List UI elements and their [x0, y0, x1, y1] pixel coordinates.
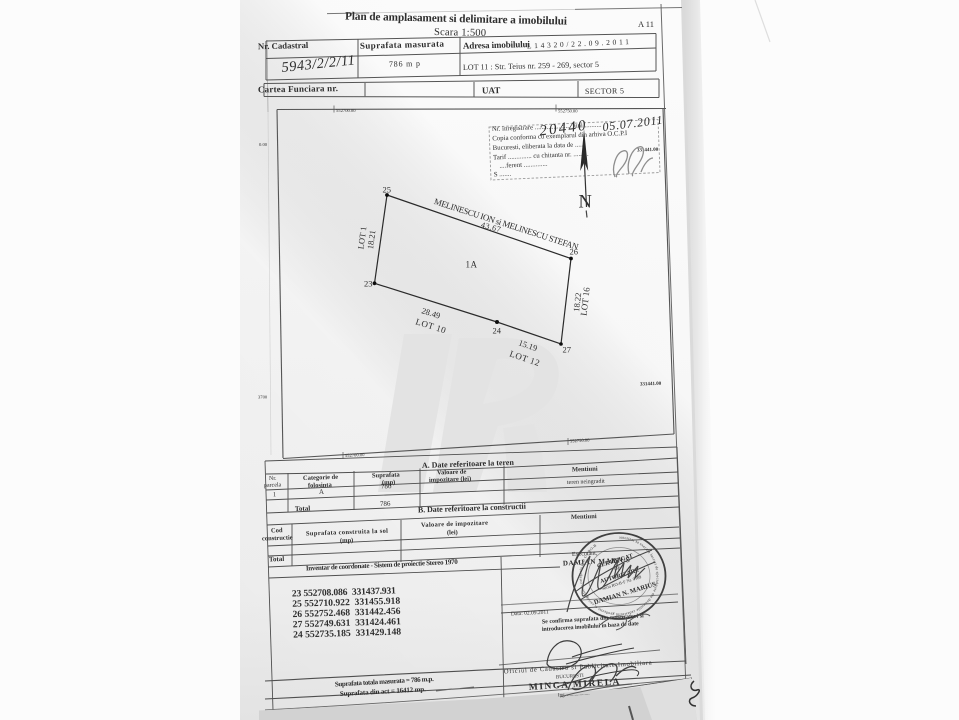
svg-text:3700: 3700 [258, 395, 268, 400]
svg-text:552700.00: 552700.00 [336, 108, 356, 113]
svg-text:S .......: S ....... [494, 171, 512, 179]
svg-text:Categorie de: Categorie de [303, 474, 339, 482]
svg-text:27: 27 [563, 345, 572, 355]
svg-text:24: 24 [493, 326, 502, 336]
svg-text:786 m p: 786 m p [389, 59, 420, 69]
svg-text:23: 23 [364, 279, 373, 289]
svg-text:552750.00: 552750.00 [558, 108, 578, 113]
svg-text:impozitare (lei): impozitare (lei) [429, 476, 472, 484]
svg-text:786: 786 [380, 500, 391, 508]
svg-text:constructie: constructie [262, 534, 293, 542]
svg-text:1: 1 [273, 491, 276, 498]
svg-text:UAT: UAT [482, 85, 501, 95]
svg-text:parcela: parcela [264, 482, 282, 489]
svg-text:786: 786 [381, 482, 392, 490]
svg-text:(lei): (lei) [447, 529, 458, 536]
svg-text:A: A [319, 488, 324, 496]
svg-text:Cod: Cod [271, 527, 283, 534]
svg-text:Adresa imobilului: Adresa imobilului [463, 39, 531, 51]
svg-text:Nr.: Nr. [269, 476, 277, 482]
svg-text:552700.00: 552700.00 [345, 452, 365, 458]
svg-text:0.00: 0.00 [259, 142, 268, 147]
svg-text:331441.00: 331441.00 [637, 148, 659, 154]
svg-text:331441.00: 331441.00 [640, 382, 662, 388]
svg-text:25: 25 [383, 185, 392, 195]
svg-text:Total: Total [295, 504, 311, 513]
svg-text:Nr. Cadastral: Nr. Cadastral [258, 40, 309, 51]
svg-text:A 11: A 11 [638, 19, 654, 29]
svg-text:(mp): (mp) [340, 537, 354, 544]
svg-text:Total: Total [269, 555, 285, 564]
svg-text:Cartea Funciara nr.: Cartea Funciara nr. [258, 83, 338, 94]
svg-text:Mentiuni: Mentiuni [572, 466, 598, 474]
svg-text:N: N [579, 193, 592, 213]
svg-text:552750.00: 552750.00 [570, 437, 590, 443]
svg-text:Suprafata: Suprafata [372, 472, 401, 480]
svg-text:Mentiuni: Mentiuni [571, 513, 597, 521]
svg-text:1A: 1A [466, 260, 478, 270]
svg-text:SECTOR 5: SECTOR 5 [585, 86, 624, 96]
